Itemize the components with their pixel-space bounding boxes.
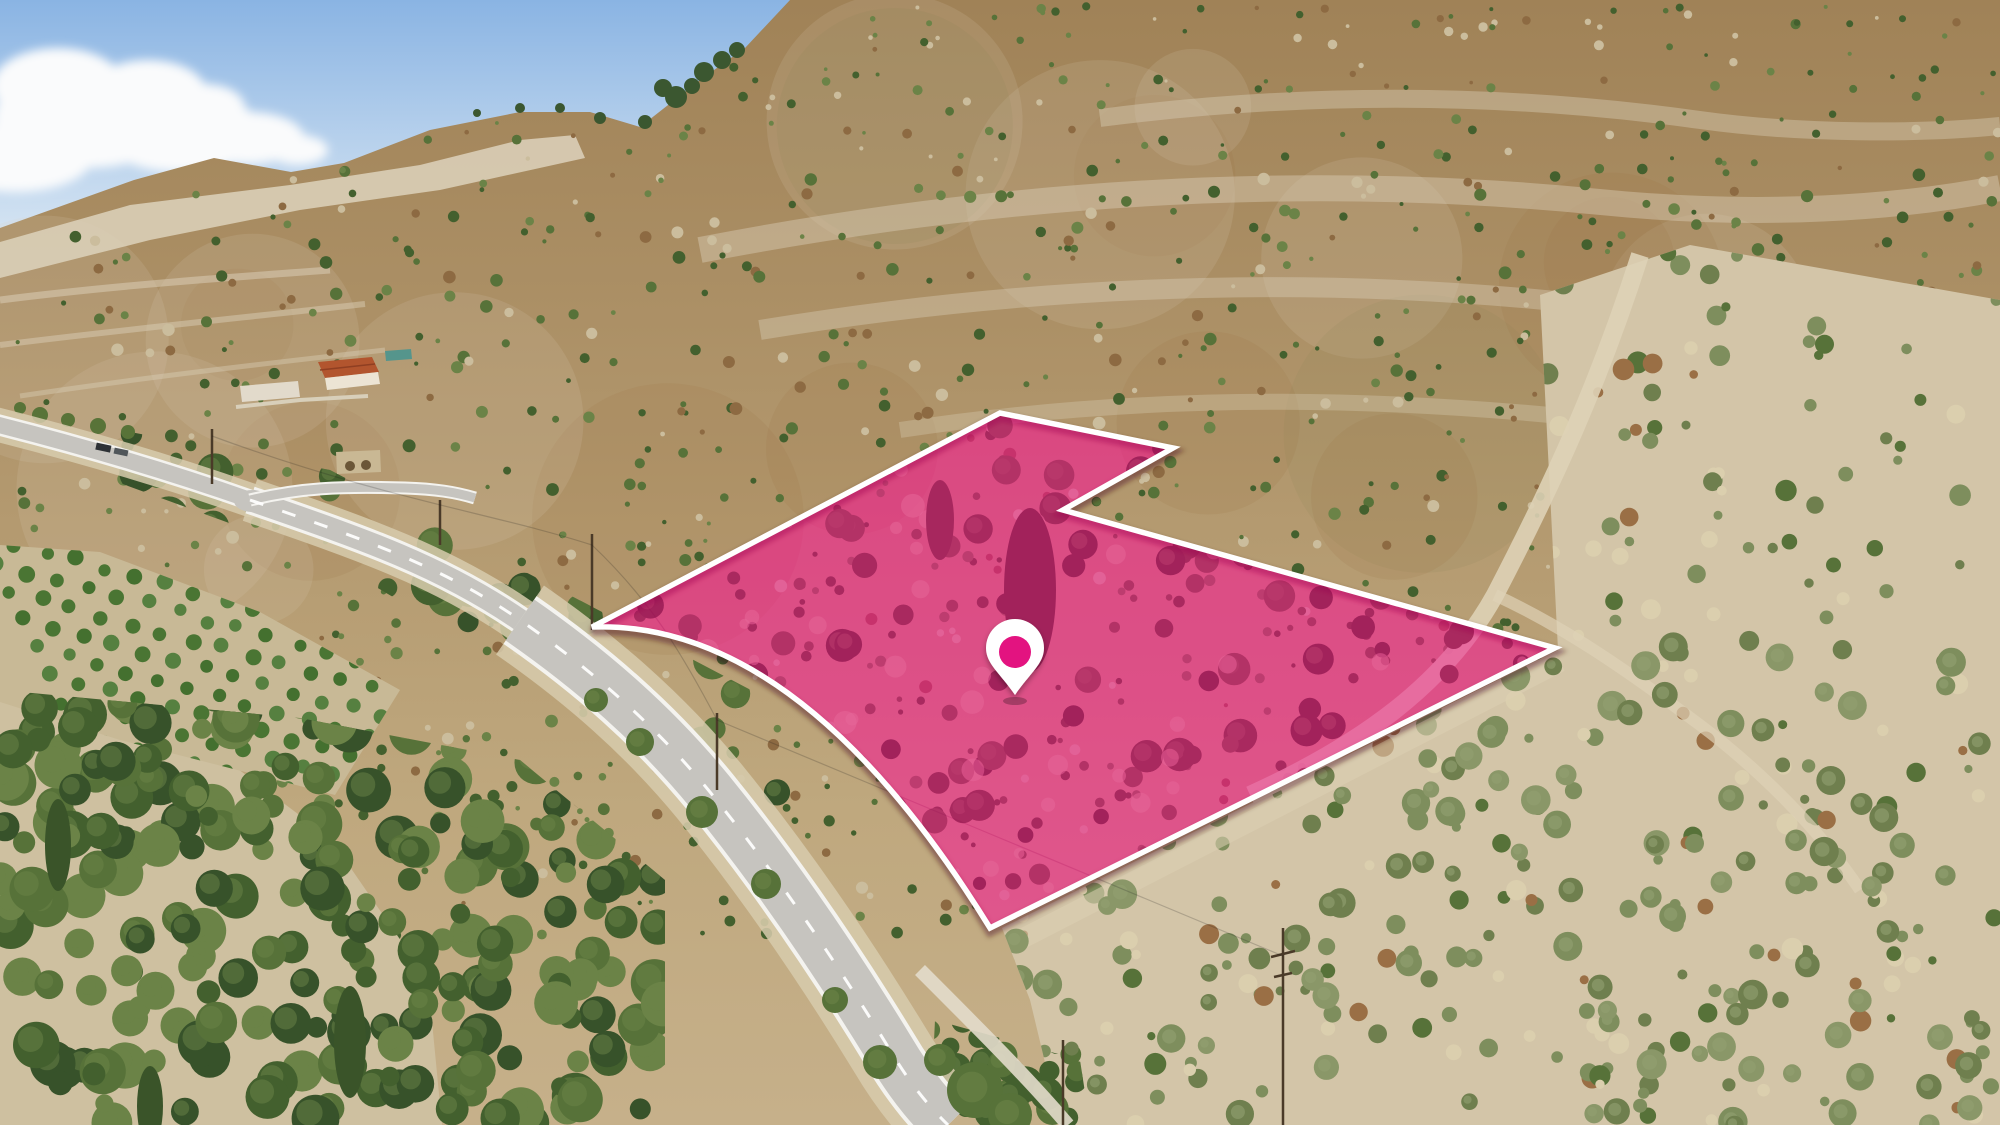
aerial-photo [0, 0, 2000, 1125]
pin-ground-shadow [1003, 697, 1027, 705]
pool [385, 349, 412, 361]
cypress-tree [334, 986, 366, 1098]
arch-opening [361, 460, 371, 470]
cloud [268, 135, 328, 165]
stone-building [336, 450, 381, 474]
arch-opening [345, 461, 355, 471]
cypress-tree [45, 799, 71, 891]
pin-dot [999, 636, 1031, 668]
